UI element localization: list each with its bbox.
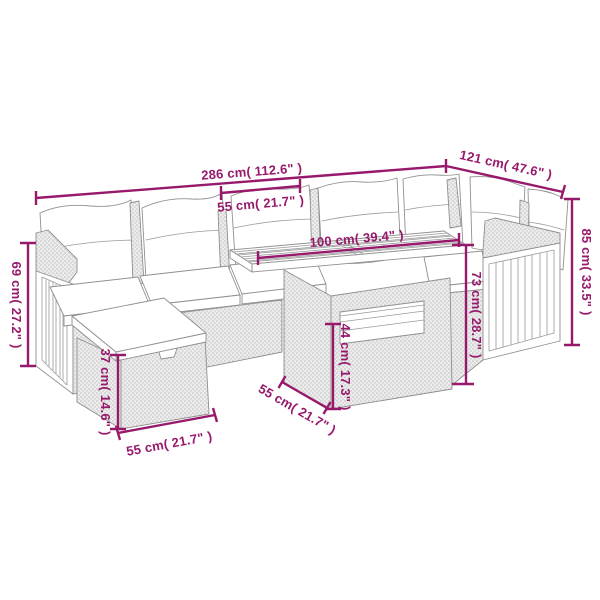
dimension-armrest-height: 69 cm( 27.2" ) bbox=[9, 243, 36, 366]
dimension-label: 44 cm( 17.3" ) bbox=[338, 323, 353, 410]
product-dimension-diagram: 286 cm( 112.6" ) 121 cm( 47.6" ) 55 cm( … bbox=[0, 0, 600, 600]
dimension-back-height: 85 cm( 33.5" ) bbox=[564, 199, 594, 345]
armrest-wood-panel bbox=[483, 243, 560, 360]
right-armrest bbox=[483, 218, 560, 360]
dimension-label: 85 cm( 33.5" ) bbox=[579, 228, 594, 315]
dimension-label: 73 cm( 28.7" ) bbox=[469, 271, 484, 358]
dimension-label: 37 cm( 14.6" ) bbox=[98, 348, 113, 435]
screenshot-canvas: 286 cm( 112.6" ) 121 cm( 47.6" ) 55 cm( … bbox=[0, 0, 600, 600]
dimension-label: 55 cm( 21.7" ) bbox=[125, 428, 213, 459]
dimension-label: 69 cm( 27.2" ) bbox=[9, 261, 24, 348]
